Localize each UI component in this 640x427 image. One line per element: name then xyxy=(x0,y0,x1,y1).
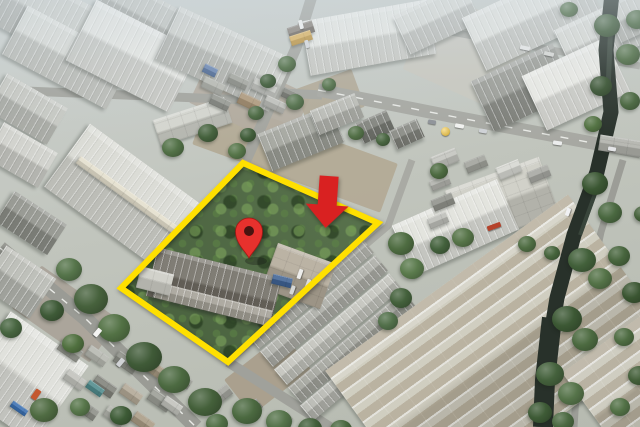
pin-shadow xyxy=(245,257,267,265)
pin-body xyxy=(236,218,263,258)
annotation-layer xyxy=(0,0,640,427)
location-pin-icon xyxy=(236,218,268,265)
pin-hole xyxy=(244,226,254,236)
aerial-photo xyxy=(0,0,640,427)
down-arrow-icon xyxy=(304,175,351,230)
